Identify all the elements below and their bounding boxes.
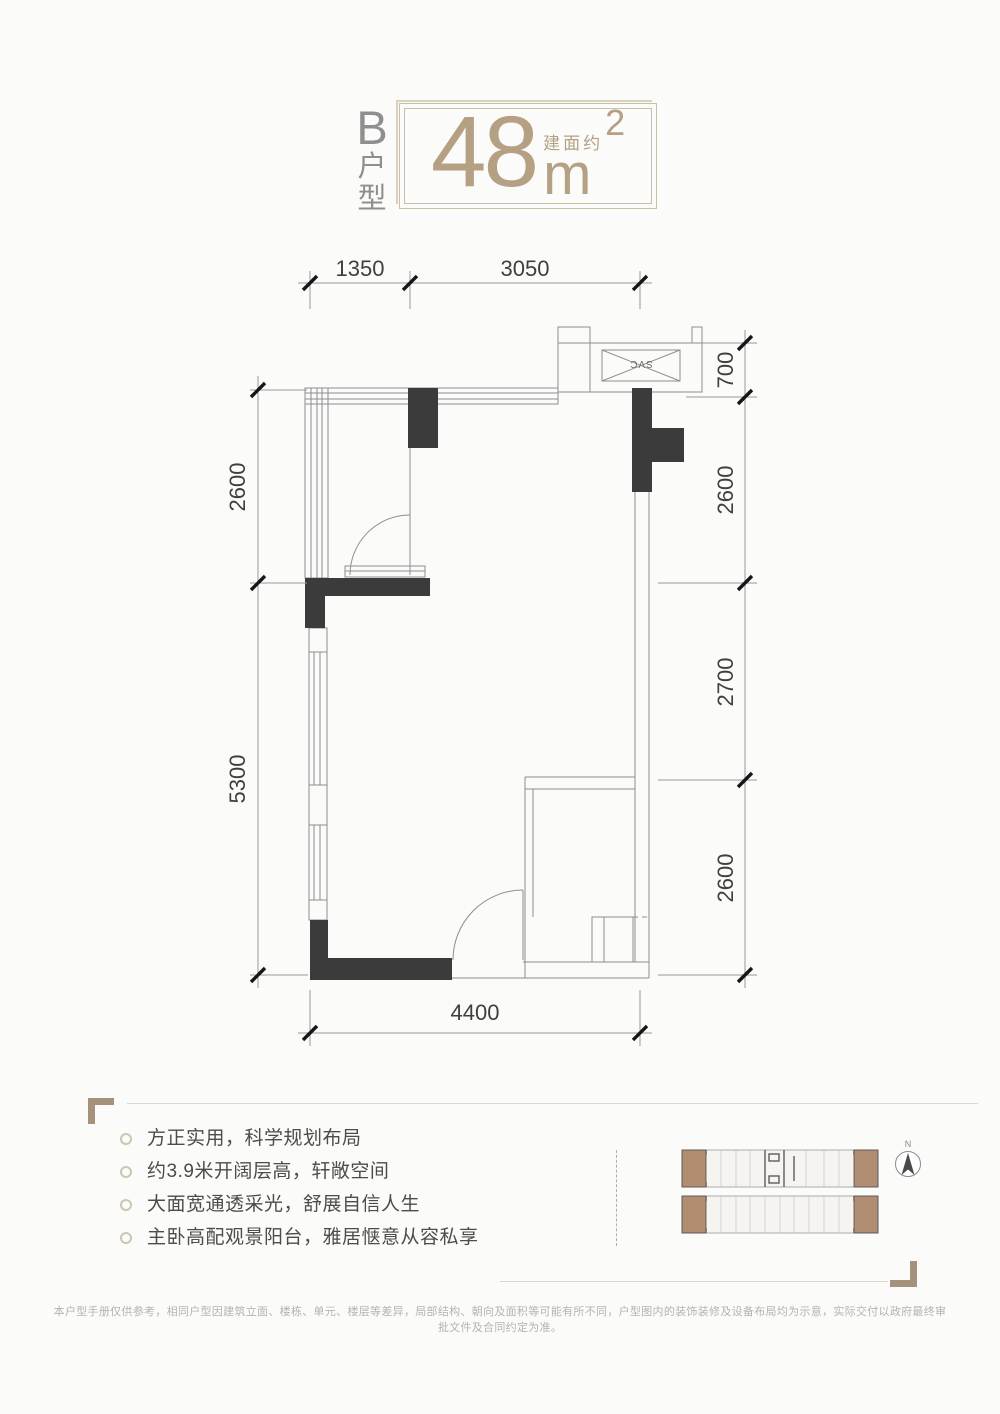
floorplan-drawing: SVC 1350 3050 700 2600 2700 2600 2600 53… xyxy=(200,230,800,1060)
feature-item: 方正实用，科学规划布局 xyxy=(120,1122,479,1155)
disclaimer-text: 本户型手册仅供参考，相同户型因建筑立面、楼栋、单元、楼层等差异，局部结构、朝向及… xyxy=(50,1303,950,1335)
dimension-label: 1350 xyxy=(336,256,385,281)
entry-door-arc xyxy=(453,890,523,960)
dimension-label: 3050 xyxy=(501,256,550,281)
divider-line-bottom xyxy=(500,1281,888,1282)
dimension-label: 2600 xyxy=(713,854,738,903)
unit-type-label: B 户 型 xyxy=(352,106,392,216)
ring-bullet-icon xyxy=(120,1199,132,1211)
structural-walls xyxy=(305,388,684,980)
dimension-label: 2600 xyxy=(713,466,738,515)
unit-type-letter: B xyxy=(352,106,392,151)
feature-text: 方正实用，科学规划布局 xyxy=(147,1122,362,1155)
vertical-dashed-divider xyxy=(616,1150,617,1246)
area-badge: 48 建面约 m 2 xyxy=(399,103,657,209)
feature-text: 约3.9米开阔层高，轩敞空间 xyxy=(147,1155,389,1188)
dimension-label: 700 xyxy=(713,352,738,389)
area-value: 48 xyxy=(431,111,536,193)
north-arrow-icon: N xyxy=(896,1139,921,1177)
north-label: N xyxy=(905,1139,912,1149)
dimension-label: 5300 xyxy=(225,755,250,804)
dimension-label: 2700 xyxy=(713,658,738,707)
ring-bullet-icon xyxy=(120,1166,132,1178)
area-unit: m xyxy=(543,157,591,193)
divider-line-top xyxy=(127,1103,978,1104)
feature-item: 约3.9米开阔层高，轩敞空间 xyxy=(120,1155,479,1188)
ring-bullet-icon xyxy=(120,1133,132,1145)
building-keyplan: N xyxy=(672,1136,936,1254)
feature-list: 方正实用，科学规划布局 约3.9米开阔层高，轩敞空间 大面宽通透采光，舒展自信人… xyxy=(120,1122,479,1254)
corner-bracket-top-left xyxy=(88,1098,114,1124)
feature-text: 大面宽通透采光，舒展自信人生 xyxy=(147,1188,420,1221)
feature-item: 主卧高配观景阳台，雅居惬意从容私享 xyxy=(120,1221,479,1254)
dimension-labels: 1350 3050 700 2600 2700 2600 2600 5300 4… xyxy=(225,256,738,1025)
closet-room xyxy=(525,777,649,978)
dimension-label: 2600 xyxy=(225,463,250,512)
corner-bracket-bottom-right xyxy=(890,1261,917,1287)
feature-item: 大面宽通透采光，舒展自信人生 xyxy=(120,1188,479,1221)
ring-bullet-icon xyxy=(120,1232,132,1244)
dimension-label: 4400 xyxy=(451,1000,500,1025)
area-exponent: 2 xyxy=(605,105,625,141)
feature-text: 主卧高配观景阳台，雅居惬意从容私享 xyxy=(147,1221,479,1254)
area-badge-inner: 48 建面约 m 2 xyxy=(404,108,652,204)
shaft-label: SVC xyxy=(629,358,653,369)
